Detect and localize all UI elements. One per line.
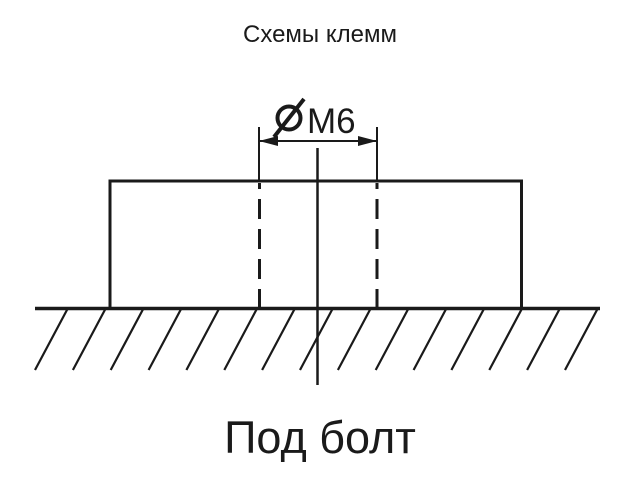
terminal-diagram: Схемы клемм M6 Под болт — [0, 0, 640, 480]
terminal-scheme-page: Схемы клемм M6 Под болт — [0, 0, 640, 480]
arrowhead-left-icon — [259, 136, 278, 146]
diagram-caption: Под болт — [224, 412, 416, 463]
arrowhead-right-icon — [358, 136, 377, 146]
dimension-label: M6 — [307, 102, 356, 141]
diameter-symbol-icon — [274, 99, 304, 137]
diagram-title: Схемы клемм — [243, 21, 397, 48]
terminal-block-outline — [110, 181, 522, 309]
